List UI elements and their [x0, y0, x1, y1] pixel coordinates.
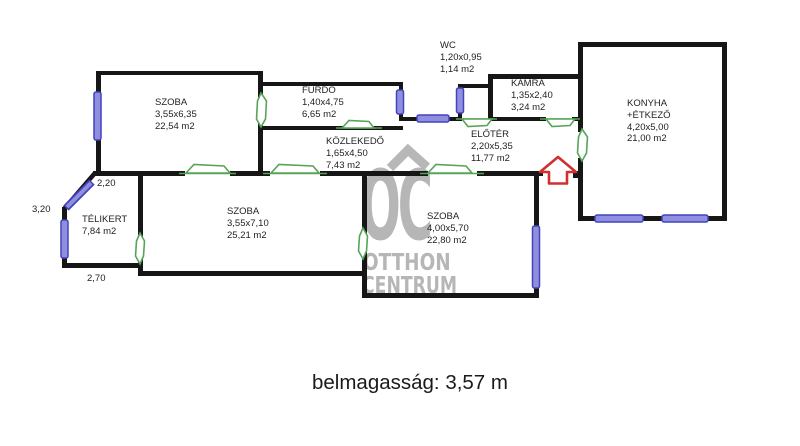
room-area: 7,84 m2 [82, 226, 127, 238]
wall [230, 171, 270, 176]
wall [458, 84, 492, 88]
wall [578, 158, 583, 221]
wall [362, 293, 539, 298]
room-name: KONYHA [627, 98, 671, 110]
room-name-2: +ÉTKEZŐ [627, 110, 671, 122]
room-name: ELŐTÉR [471, 129, 513, 141]
room-name: KÖZLEKEDŐ [326, 136, 384, 148]
room-dimensions: 2,20x5,35 [471, 141, 513, 153]
wall [399, 82, 403, 121]
room-area: 6,65 m2 [302, 109, 344, 121]
wall [534, 171, 539, 298]
room-label-konyha: KONYHA +ÉTKEZŐ 4,20x5,00 21,00 m2 [627, 98, 671, 145]
room-area: 3,24 m2 [511, 102, 553, 114]
room-name: FÜRDŐ [302, 85, 344, 97]
wall [458, 84, 462, 121]
door-icon [271, 165, 319, 174]
room-dimensions: 1,65x4,50 [326, 148, 384, 160]
room-label-szoba-2: SZOBA 3,55x7,10 25,21 m2 [227, 206, 269, 241]
room-area: 22,80 m2 [427, 235, 469, 247]
wall [399, 117, 462, 121]
room-label-furdo: FÜRDŐ 1,40x4,75 6,65 m2 [302, 85, 344, 120]
diagonal-wall [64, 173, 95, 209]
door-icon [578, 129, 588, 161]
room-dimensions: 1,40x4,75 [302, 97, 344, 109]
wall [488, 74, 493, 121]
room-name: SZOBA [155, 97, 197, 109]
room-label-kozlekedo: KÖZLEKEDŐ 1,65x4,50 7,43 m2 [326, 136, 384, 171]
wall [96, 71, 263, 75]
floor-plan: OC OTTHON CENTRUM [0, 0, 800, 446]
wall [138, 175, 143, 276]
room-area: 22,54 m2 [155, 121, 197, 133]
room-dimensions: 1,35x2,40 [511, 90, 553, 102]
wall [258, 126, 403, 130]
room-dimensions: 3,55x7,10 [227, 218, 269, 230]
window-icon [67, 183, 91, 207]
watermark-name-line1: OTTHON [363, 252, 451, 275]
room-name: SZOBA [427, 211, 469, 223]
wall [362, 171, 367, 298]
door-icon [546, 119, 575, 127]
dimension-left: 3,20 [32, 204, 51, 215]
room-dimensions: 4,00x5,70 [427, 223, 469, 235]
room-label-szoba-3: SZOBA 4,00x5,70 22,80 m2 [427, 211, 469, 246]
door-icon [186, 165, 230, 174]
wall [258, 71, 263, 175]
room-area: 7,43 m2 [326, 160, 384, 172]
room-name: TÉLIKERT [82, 214, 127, 226]
room-name: KAMRA [511, 78, 553, 90]
room-dimensions: 4,20x5,00 [627, 122, 671, 134]
room-name: WC [440, 40, 482, 52]
ceiling-height-note: belmagasság: 3,57 m [0, 371, 800, 395]
room-name: SZOBA [227, 206, 269, 218]
wall [138, 271, 367, 276]
window-icon [66, 182, 92, 208]
dimension-top: 2,20 [97, 178, 116, 189]
wall [96, 71, 101, 175]
wall [578, 216, 727, 221]
wall [62, 207, 67, 268]
dimension-bottom: 2,70 [87, 273, 106, 284]
room-area: 21,00 m2 [627, 133, 671, 145]
room-area: 11,77 m2 [471, 153, 513, 165]
room-label-eloter: ELŐTÉR 2,20x5,35 11,77 m2 [471, 129, 513, 164]
wall [578, 42, 583, 132]
room-dimensions: 3,55x6,35 [155, 109, 197, 121]
wall [488, 117, 546, 121]
room-label-wc: WC 1,20x0,95 1,14 m2 [440, 40, 482, 75]
entrance-arrow-icon [540, 157, 576, 184]
wall [722, 42, 727, 221]
room-label-kamra: KAMRA 1,35x2,40 3,24 m2 [511, 78, 553, 113]
room-label-szoba-1: SZOBA 3,55x6,35 22,54 m2 [155, 97, 197, 132]
room-area: 1,14 m2 [440, 64, 482, 76]
room-label-telikert: TÉLIKERT 7,84 m2 [82, 214, 127, 238]
wall [320, 171, 428, 176]
wall [578, 42, 727, 47]
room-dimensions: 1,20x0,95 [440, 52, 482, 64]
room-area: 25,21 m2 [227, 230, 269, 242]
wall [62, 263, 143, 268]
